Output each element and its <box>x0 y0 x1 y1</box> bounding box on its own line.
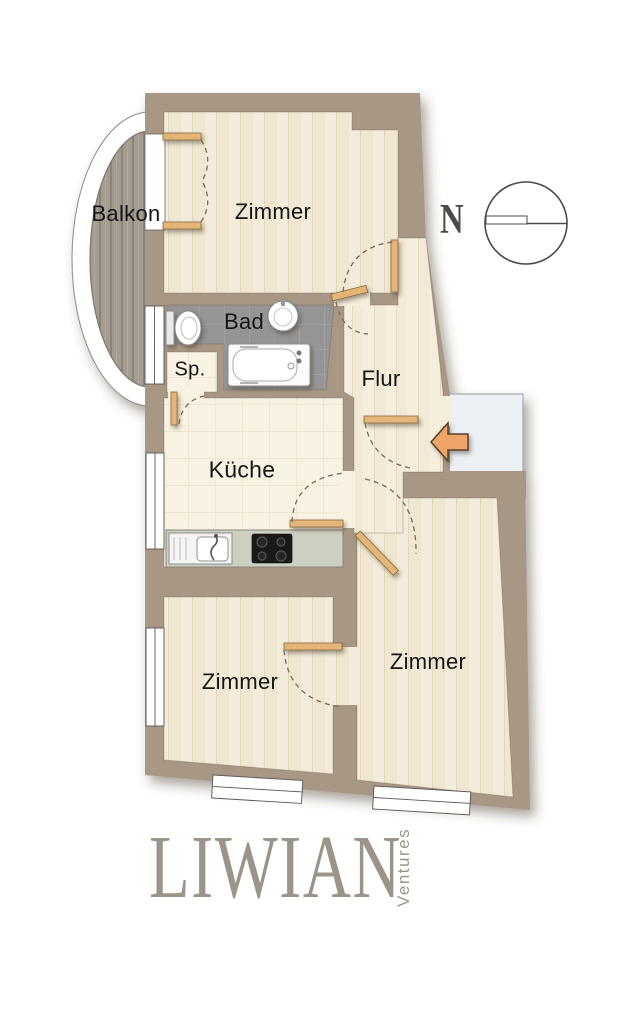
room-label-kueche: Küche <box>209 457 276 484</box>
cooktop <box>252 534 292 563</box>
kitchen-sink <box>169 533 232 564</box>
room-label-zimmer-right: Zimmer <box>390 649 466 675</box>
compass-north-label: N <box>440 196 464 244</box>
brand-logo-subtitle: Ventures <box>395 828 412 907</box>
window <box>145 306 164 384</box>
room-label-zimmer-left: Zimmer <box>202 669 278 695</box>
room-label-balkon: Balkon <box>91 201 160 227</box>
room-label-bad: Bad <box>224 309 264 335</box>
brand-logo: LIWIAN <box>149 823 402 913</box>
room-label-sp: Sp. <box>175 359 206 382</box>
floorplan-page: Balkon Zimmer Bad Sp. Flur Küche Zimmer … <box>0 0 643 1024</box>
window <box>212 775 303 803</box>
room-zimmer-right-floor <box>357 498 513 797</box>
window <box>146 453 164 549</box>
bathtub <box>228 344 310 386</box>
compass-icon <box>485 182 567 264</box>
room-label-zimmer-top: Zimmer <box>235 199 311 225</box>
toilet <box>166 311 201 345</box>
kitchen-counter <box>166 530 343 567</box>
room-label-flur: Flur <box>361 366 400 392</box>
window <box>146 628 164 726</box>
wall-below-landing <box>420 471 526 498</box>
